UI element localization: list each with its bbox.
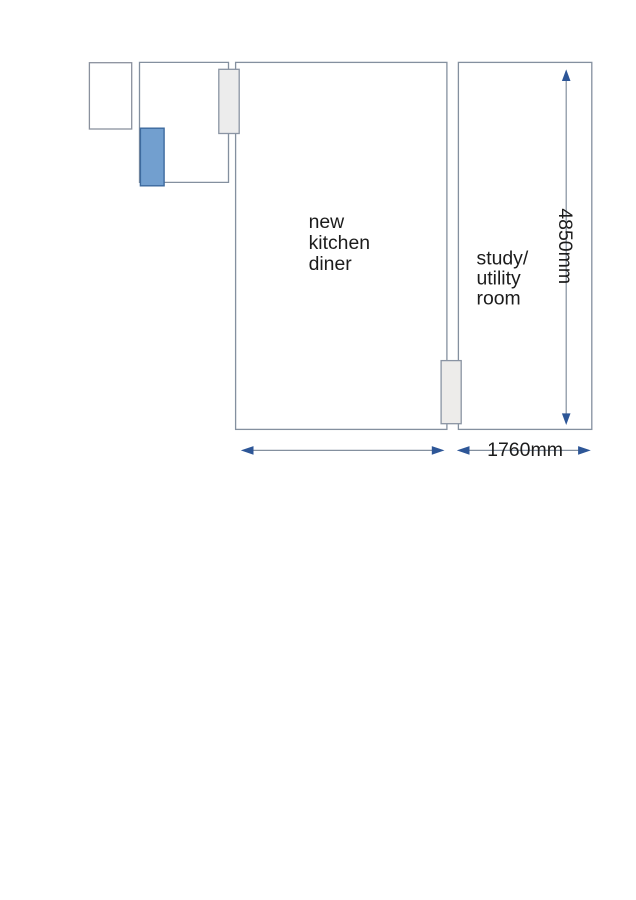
svg-text:kitchen: kitchen	[309, 232, 370, 254]
svg-text:utility: utility	[477, 268, 521, 290]
svg-text:1760mm: 1760mm	[487, 439, 563, 461]
svg-text:new: new	[309, 211, 346, 233]
svg-text:diner: diner	[309, 253, 353, 275]
svg-text:study/: study/	[477, 247, 529, 269]
svg-text:4850mm: 4850mm	[554, 208, 576, 284]
svg-text:room: room	[477, 287, 521, 309]
